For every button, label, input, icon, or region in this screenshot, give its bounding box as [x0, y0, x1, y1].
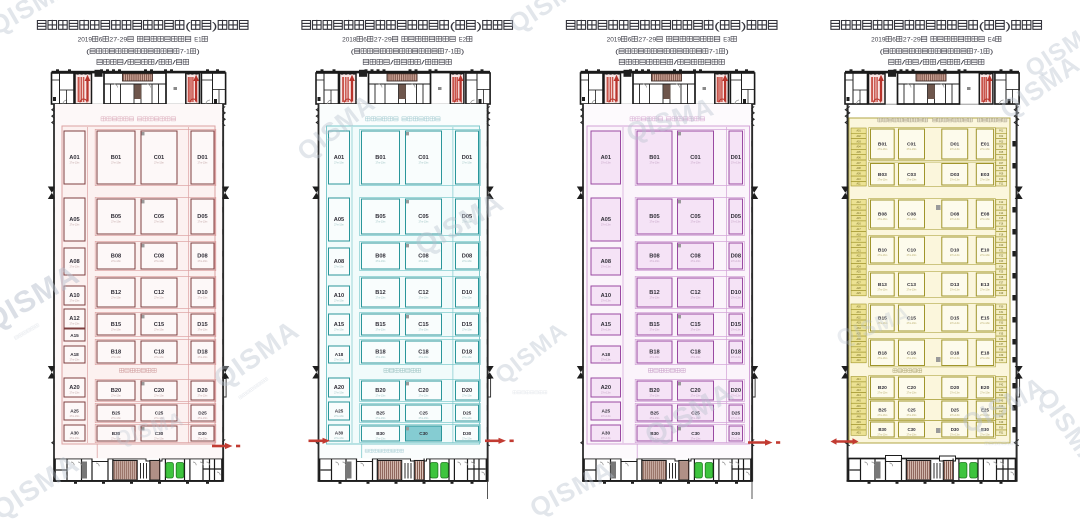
svg-text:27m-13m: 27m-13m [691, 222, 701, 224]
svg-text:F13: F13 [999, 207, 1004, 210]
svg-text:D01: D01 [731, 155, 741, 161]
svg-text:7-1: 7-1 [709, 49, 720, 56]
svg-text:C18: C18 [907, 350, 916, 356]
svg-text:27m-13m: 27m-13m [691, 357, 701, 359]
svg-text:A06: A06 [856, 156, 861, 159]
svg-text:27m-13m: 27m-13m [334, 393, 344, 395]
svg-text:F25: F25 [999, 271, 1004, 274]
svg-text:27m-13m: 27m-13m [691, 163, 701, 165]
svg-text:F51: F51 [999, 432, 1004, 435]
svg-text:A27: A27 [856, 281, 861, 284]
svg-text:6: 6 [628, 37, 632, 44]
svg-text:F17: F17 [999, 228, 1004, 231]
svg-text:27m-13m: 27m-13m [111, 357, 121, 359]
svg-text:F15: F15 [999, 217, 1004, 220]
svg-text:27m-13m: 27m-13m [980, 435, 990, 437]
svg-text:27m-13m: 27m-13m [419, 357, 429, 359]
svg-text:27m-13m: 27m-13m [650, 357, 660, 359]
svg-text:C01: C01 [418, 155, 428, 161]
svg-text:27m-13m: 27m-13m [376, 330, 386, 332]
svg-text:B13: B13 [878, 282, 887, 288]
svg-text:A09: A09 [856, 173, 861, 176]
svg-text:D01: D01 [950, 142, 959, 148]
svg-text:A01: A01 [69, 155, 79, 161]
svg-text:A02: A02 [856, 135, 861, 138]
svg-text:A17: A17 [856, 228, 861, 231]
svg-text:A23: A23 [856, 260, 861, 263]
svg-text:D30: D30 [731, 431, 740, 436]
svg-text:F01: F01 [999, 130, 1004, 133]
svg-text:A20: A20 [334, 385, 344, 391]
svg-text:27m-13m: 27m-13m [650, 396, 660, 398]
svg-text:B12: B12 [649, 290, 659, 296]
svg-text:27m-13m: 27m-13m [462, 439, 472, 441]
svg-text:A48: A48 [856, 416, 861, 419]
svg-text:F07: F07 [999, 162, 1004, 165]
svg-text:27m-13m: 27m-13m [111, 396, 121, 398]
svg-text:27m-13m: 27m-13m [154, 222, 164, 224]
svg-text:27-29: 27-29 [109, 37, 127, 44]
svg-text:D08: D08 [462, 254, 472, 260]
svg-text:27m-13m: 27m-13m [334, 438, 344, 440]
svg-text:D25: D25 [198, 411, 207, 416]
svg-text:A18: A18 [70, 352, 79, 357]
svg-text:27m-13m: 27m-13m [70, 225, 80, 227]
svg-text:27m-13m: 27m-13m [154, 396, 164, 398]
svg-text:A04: A04 [856, 146, 861, 149]
svg-text:C01: C01 [690, 155, 700, 161]
svg-text:F08: F08 [999, 167, 1004, 170]
svg-text:D20: D20 [462, 388, 472, 394]
svg-text:27m-13m: 27m-13m [334, 416, 344, 418]
svg-text:): ) [461, 49, 464, 56]
svg-text:27m-13m: 27m-13m [980, 323, 990, 325]
svg-text:A08: A08 [334, 259, 344, 265]
svg-text:27m-13m: 27m-13m [376, 261, 386, 263]
svg-text:27m-13m: 27m-13m [462, 163, 472, 165]
svg-text:27m-13m: 27m-13m [907, 393, 917, 395]
svg-text:B01: B01 [111, 155, 121, 161]
svg-text:A26: A26 [856, 276, 861, 279]
svg-text:A25: A25 [856, 271, 861, 274]
svg-text:B05: B05 [111, 214, 121, 220]
svg-text:27m-13m: 27m-13m [198, 330, 208, 332]
svg-text:A01: A01 [601, 155, 611, 161]
svg-text:27m-13m: 27m-13m [731, 418, 741, 420]
svg-text:A20: A20 [69, 385, 79, 391]
svg-text:27m-13m: 27m-13m [70, 393, 80, 395]
svg-text:B18: B18 [878, 350, 887, 356]
svg-text:27m-13m: 27m-13m [111, 222, 121, 224]
svg-text:A12: A12 [856, 201, 861, 204]
svg-text:): ) [212, 22, 218, 33]
svg-text:27m-13m: 27m-13m [419, 439, 429, 441]
svg-text:D05: D05 [731, 214, 741, 220]
svg-text:27m-13m: 27m-13m [154, 298, 164, 300]
svg-text:D15: D15 [462, 322, 472, 328]
svg-text:C30: C30 [691, 431, 700, 436]
svg-text:A40: A40 [856, 359, 861, 362]
svg-text:F11: F11 [999, 183, 1004, 186]
svg-text:27m-13m: 27m-13m [907, 415, 917, 417]
svg-text:D18: D18 [731, 350, 741, 356]
svg-text:A30: A30 [70, 431, 79, 436]
svg-text:A29: A29 [856, 292, 861, 295]
svg-text:A24: A24 [856, 265, 861, 268]
svg-text:27m-13m: 27m-13m [70, 360, 80, 362]
svg-text:27m-13m: 27m-13m [154, 261, 164, 263]
svg-text:F28: F28 [999, 287, 1004, 290]
svg-text:27m-13m: 27m-13m [601, 225, 611, 227]
svg-text:7-1: 7-1 [444, 49, 455, 56]
svg-text:27m-13m: 27m-13m [691, 261, 701, 263]
svg-text:27m-13m: 27m-13m [419, 261, 429, 263]
svg-text:A18: A18 [856, 233, 861, 236]
svg-text:E03: E03 [981, 172, 990, 178]
svg-text:27m-13m: 27m-13m [878, 290, 888, 292]
svg-text:B15: B15 [111, 322, 121, 328]
svg-text:27m-13m: 27m-13m [198, 357, 208, 359]
svg-text:27m-13m: 27m-13m [419, 418, 429, 420]
svg-text:C20: C20 [418, 388, 428, 394]
svg-text:27m-13m: 27m-13m [154, 357, 164, 359]
svg-text:D20: D20 [197, 388, 207, 394]
svg-text:27m-13m: 27m-13m [462, 418, 472, 420]
svg-text:27m-13m: 27m-13m [950, 323, 960, 325]
svg-text:27m-13m: 27m-13m [601, 301, 611, 303]
svg-text:27m-13m: 27m-13m [70, 416, 80, 418]
svg-text:D15: D15 [197, 322, 207, 328]
svg-text:D30: D30 [198, 431, 207, 436]
svg-text:27m-13m: 27m-13m [907, 435, 917, 437]
svg-text:27m-13m: 27m-13m [419, 330, 429, 332]
svg-text:A13: A13 [856, 207, 861, 210]
svg-text:27m-13m: 27m-13m [980, 149, 990, 151]
svg-text:27m-13m: 27m-13m [731, 298, 741, 300]
svg-text:D18: D18 [197, 350, 207, 356]
svg-text:B08: B08 [878, 212, 887, 218]
svg-text:27m-13m: 27m-13m [731, 222, 741, 224]
svg-text:E4: E4 [988, 37, 995, 44]
svg-text:B18: B18 [375, 350, 385, 356]
svg-text:27m-13m: 27m-13m [198, 163, 208, 165]
svg-text:A30: A30 [335, 431, 344, 436]
svg-text:A47: A47 [856, 410, 861, 413]
svg-text:27m-13m: 27m-13m [419, 396, 429, 398]
svg-text:F20: F20 [999, 244, 1004, 247]
svg-text:27m-13m: 27m-13m [376, 396, 386, 398]
svg-text:B25: B25 [376, 411, 385, 416]
svg-text:27-29: 27-29 [374, 37, 392, 44]
svg-text:27m-13m: 27m-13m [980, 393, 990, 395]
svg-text:B18: B18 [649, 350, 659, 356]
svg-text:7-1: 7-1 [180, 49, 191, 56]
svg-text:C01: C01 [154, 155, 164, 161]
svg-text:27m-13m: 27m-13m [462, 261, 472, 263]
svg-text:A39: A39 [856, 354, 861, 357]
svg-text:A08: A08 [856, 167, 861, 170]
svg-text:27m-13m: 27m-13m [462, 298, 472, 300]
svg-text:F06: F06 [999, 156, 1004, 159]
svg-text:D03: D03 [950, 172, 959, 178]
svg-text:27m-13m: 27m-13m [950, 219, 960, 221]
svg-text:F38: F38 [999, 349, 1004, 352]
svg-text:27m-13m: 27m-13m [731, 163, 741, 165]
svg-text:A20: A20 [856, 244, 861, 247]
svg-text:C18: C18 [154, 350, 164, 356]
svg-text:C30: C30 [907, 427, 916, 432]
svg-text:27m-13m: 27m-13m [376, 439, 386, 441]
svg-text:27m-13m: 27m-13m [198, 261, 208, 263]
svg-text:B30: B30 [376, 431, 385, 436]
svg-text:/: / [902, 60, 906, 67]
svg-text:C25: C25 [907, 408, 916, 413]
svg-text:27m-13m: 27m-13m [198, 439, 208, 441]
svg-text:F23: F23 [999, 260, 1004, 263]
svg-text:B20: B20 [111, 388, 121, 394]
svg-text:A31: A31 [856, 311, 861, 314]
svg-text:27m-13m: 27m-13m [70, 438, 80, 440]
svg-text:C12: C12 [690, 290, 700, 296]
svg-text:A28: A28 [856, 287, 861, 290]
svg-text:27m-13m: 27m-13m [601, 360, 611, 362]
svg-text:D30: D30 [463, 431, 472, 436]
svg-text:(: ( [979, 22, 986, 33]
svg-text:): ) [196, 49, 199, 56]
svg-text:27m-13m: 27m-13m [691, 439, 701, 441]
svg-text:27m-13m: 27m-13m [950, 435, 960, 437]
svg-text:27m-13m: 27m-13m [70, 301, 80, 303]
svg-text:B30: B30 [878, 427, 887, 432]
svg-text:27-29: 27-29 [903, 37, 921, 44]
svg-text:A30: A30 [856, 306, 861, 309]
svg-text:F19: F19 [999, 239, 1004, 242]
svg-text:27m-13m: 27m-13m [650, 298, 660, 300]
svg-text:B05: B05 [649, 214, 659, 220]
svg-text:A19: A19 [856, 239, 861, 242]
svg-text:C08: C08 [907, 212, 916, 218]
svg-text:A25: A25 [601, 409, 610, 414]
svg-text:27m-13m: 27m-13m [462, 396, 472, 398]
svg-text:C18: C18 [418, 350, 428, 356]
svg-text:E08: E08 [981, 212, 990, 218]
svg-text:27m-13m: 27m-13m [376, 163, 386, 165]
svg-text:27m-13m: 27m-13m [907, 219, 917, 221]
svg-text:A12: A12 [69, 316, 79, 322]
svg-text:27m-13m: 27m-13m [334, 330, 344, 332]
svg-text:27m-13m: 27m-13m [601, 267, 611, 269]
svg-text:27m-13m: 27m-13m [731, 330, 741, 332]
svg-text:A01: A01 [334, 155, 344, 161]
svg-text:D20: D20 [950, 385, 959, 391]
svg-text:27m-13m: 27m-13m [980, 179, 990, 181]
svg-text:D10: D10 [950, 248, 959, 254]
svg-text:A46: A46 [856, 405, 861, 408]
svg-text:D18: D18 [950, 350, 959, 356]
svg-text:A15: A15 [601, 322, 611, 328]
svg-text:C15: C15 [154, 322, 164, 328]
svg-text:C08: C08 [154, 254, 164, 260]
svg-text:F24: F24 [999, 265, 1004, 268]
svg-text:A11: A11 [857, 183, 862, 186]
svg-text:F35: F35 [999, 332, 1004, 335]
svg-text:27m-13m: 27m-13m [650, 330, 660, 332]
svg-text:27m-13m: 27m-13m [198, 298, 208, 300]
svg-text:): ) [476, 22, 482, 33]
svg-text:D08: D08 [950, 212, 959, 218]
svg-text:27m-13m: 27m-13m [334, 267, 344, 269]
svg-text:27m-13m: 27m-13m [462, 357, 472, 359]
svg-text:A22: A22 [856, 255, 861, 258]
svg-text:B10: B10 [878, 248, 887, 254]
svg-text:27m-13m: 27m-13m [907, 149, 917, 151]
svg-text:(: ( [714, 22, 721, 33]
svg-text:B01: B01 [649, 155, 659, 161]
svg-text:D15: D15 [731, 322, 741, 328]
svg-text:27m-13m: 27m-13m [601, 330, 611, 332]
svg-text:/: / [172, 60, 176, 67]
svg-text:27m-13m: 27m-13m [731, 357, 741, 359]
svg-text:D10: D10 [731, 290, 741, 296]
svg-text:27m-13m: 27m-13m [950, 358, 960, 360]
svg-text:27m-13m: 27m-13m [980, 255, 990, 257]
svg-text:/: / [390, 60, 394, 67]
svg-text:D30: D30 [951, 427, 960, 432]
svg-text:F04: F04 [999, 146, 1004, 149]
svg-text:A10: A10 [334, 293, 344, 299]
svg-text:A18: A18 [601, 352, 610, 357]
svg-text:27m-13m: 27m-13m [950, 393, 960, 395]
svg-text:D01: D01 [462, 155, 472, 161]
svg-text:B20: B20 [375, 388, 385, 394]
svg-text:A05: A05 [856, 151, 861, 154]
svg-text:(: ( [185, 22, 192, 33]
svg-text:27m-13m: 27m-13m [980, 358, 990, 360]
svg-text:27m-13m: 27m-13m [111, 418, 121, 420]
svg-text:): ) [725, 49, 728, 56]
svg-text:C15: C15 [418, 322, 428, 328]
svg-text:F41: F41 [999, 378, 1004, 381]
svg-text:F27: F27 [999, 281, 1004, 284]
svg-text:F16: F16 [999, 223, 1004, 226]
svg-text:B08: B08 [649, 254, 659, 260]
svg-text:B12: B12 [375, 290, 385, 296]
svg-text:A07: A07 [856, 162, 861, 165]
svg-text:27m-13m: 27m-13m [878, 179, 888, 181]
svg-text:C13: C13 [907, 282, 916, 288]
svg-text:27m-13m: 27m-13m [334, 225, 344, 227]
svg-text:): ) [741, 22, 747, 33]
svg-text:B15: B15 [649, 322, 659, 328]
svg-text:D10: D10 [462, 290, 472, 296]
svg-text:F40: F40 [999, 359, 1004, 362]
svg-text:27m-13m: 27m-13m [111, 298, 121, 300]
svg-text:A16: A16 [856, 223, 861, 226]
svg-text:27m-13m: 27m-13m [111, 261, 121, 263]
svg-text:B12: B12 [111, 290, 121, 296]
svg-text:F02: F02 [999, 135, 1004, 138]
svg-text:27m-13m: 27m-13m [334, 301, 344, 303]
svg-text:F10: F10 [999, 178, 1004, 181]
svg-text:A08: A08 [601, 259, 611, 265]
svg-text:27m-13m: 27m-13m [334, 163, 344, 165]
svg-text:A42: A42 [856, 384, 861, 387]
svg-text:27m-13m: 27m-13m [154, 163, 164, 165]
svg-text:A10: A10 [856, 178, 861, 181]
svg-text:27m-13m: 27m-13m [198, 396, 208, 398]
svg-text:D08: D08 [731, 254, 741, 260]
svg-text:27m-13m: 27m-13m [950, 179, 960, 181]
svg-text:27m-13m: 27m-13m [878, 393, 888, 395]
svg-text:C20: C20 [154, 388, 164, 394]
svg-text:27m-13m: 27m-13m [601, 393, 611, 395]
svg-text:/: / [919, 60, 923, 67]
svg-text:D01: D01 [197, 155, 207, 161]
svg-text:27m-13m: 27m-13m [419, 298, 429, 300]
svg-text:C05: C05 [154, 214, 164, 220]
svg-text:A05: A05 [601, 217, 611, 223]
svg-text:27m-13m: 27m-13m [601, 416, 611, 418]
svg-text:C08: C08 [690, 254, 700, 260]
svg-text:27m-13m: 27m-13m [198, 418, 208, 420]
svg-text:C12: C12 [418, 290, 428, 296]
svg-text:27m-13m: 27m-13m [950, 149, 960, 151]
svg-text:D10: D10 [197, 290, 207, 296]
svg-text:D25: D25 [731, 411, 740, 416]
svg-text:F22: F22 [999, 255, 1004, 258]
svg-text:27m-13m: 27m-13m [878, 219, 888, 221]
svg-text:6: 6 [363, 37, 367, 44]
svg-text:F31: F31 [999, 311, 1004, 314]
svg-text:C20: C20 [907, 385, 916, 391]
svg-text:): ) [990, 49, 993, 56]
svg-text:27m-13m: 27m-13m [376, 222, 386, 224]
svg-text:A15: A15 [856, 217, 861, 220]
svg-text:A43: A43 [856, 389, 861, 392]
svg-text:27m-13m: 27m-13m [198, 222, 208, 224]
svg-text:E13: E13 [981, 282, 990, 288]
svg-text:E20: E20 [981, 385, 990, 391]
svg-text:/: / [155, 60, 159, 67]
svg-text:E2: E2 [459, 37, 466, 44]
svg-text:F42: F42 [999, 384, 1004, 387]
svg-text:6: 6 [99, 37, 103, 44]
svg-text:27m-13m: 27m-13m [650, 222, 660, 224]
svg-text:A14: A14 [856, 212, 861, 215]
svg-text:C30: C30 [419, 431, 428, 436]
svg-text:/: / [124, 60, 128, 67]
svg-text:27m-13m: 27m-13m [691, 298, 701, 300]
svg-text:27m-13m: 27m-13m [111, 163, 121, 165]
svg-text:A21: A21 [856, 249, 861, 252]
svg-text:A10: A10 [601, 293, 611, 299]
svg-text:27m-13m: 27m-13m [950, 290, 960, 292]
svg-text:27m-13m: 27m-13m [691, 330, 701, 332]
svg-text:D15: D15 [950, 316, 959, 322]
svg-text:D05: D05 [197, 214, 207, 220]
svg-text:A41: A41 [856, 378, 861, 381]
svg-text:27m-13m: 27m-13m [601, 163, 611, 165]
svg-text:C03: C03 [907, 172, 916, 178]
svg-text:B01: B01 [375, 155, 385, 161]
svg-text:F32: F32 [999, 316, 1004, 319]
svg-text:A50: A50 [856, 426, 861, 429]
svg-text:27m-13m: 27m-13m [731, 261, 741, 263]
svg-text:A45: A45 [856, 400, 861, 403]
svg-text:C15: C15 [690, 322, 700, 328]
svg-text:27m-13m: 27m-13m [878, 255, 888, 257]
svg-text:E1: E1 [194, 37, 201, 44]
